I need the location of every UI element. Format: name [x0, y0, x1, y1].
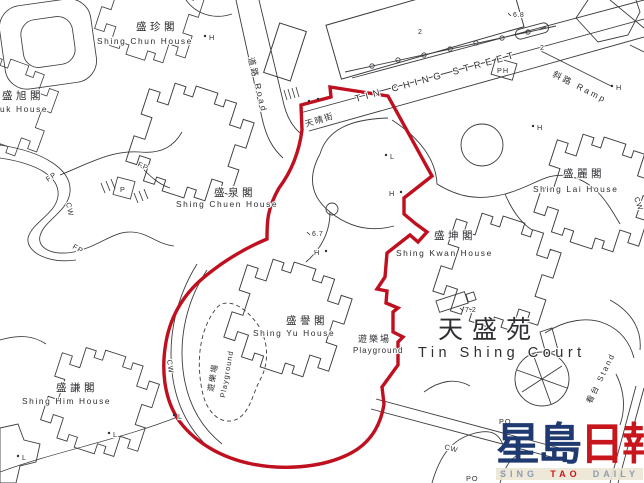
logo-en-word-2: TAO: [550, 470, 580, 479]
label-shing-chun-house-cn: 盛珍閣: [136, 20, 178, 33]
steps-hatch: [284, 87, 299, 100]
label-ramp: 斜路 Ramp: [551, 69, 609, 105]
site-plan-map: 盛珍閣 Shing Chun House 盛旭閣 uk House 盛泉閣 Sh…: [0, 0, 644, 483]
marker-h-2: H: [616, 83, 622, 92]
map-canvas: 盛珍閣 Shing Chun House 盛旭閣 uk House 盛泉閣 Sh…: [0, 0, 644, 483]
playground-paths: [171, 264, 267, 452]
label-shing-lai-house-en: Shing Lai House: [533, 184, 618, 194]
label-cw-4: CW: [632, 196, 644, 212]
label-shing-chun-house-en: Shing Chun House: [97, 36, 193, 46]
label-shing-yuk-house-cn: 盛旭閣: [2, 89, 44, 102]
marker-h-3: H: [537, 123, 543, 132]
label-shing-yuk-house-en: uk House: [0, 104, 48, 114]
logo-en-word-1: SING: [500, 470, 538, 479]
spot-2a: 2: [418, 29, 422, 36]
label-fp-1: FP: [44, 170, 58, 184]
marker-l-1: L: [390, 152, 395, 161]
marker-l-3: L: [113, 430, 118, 439]
label-shing-chuen-house-en: Shing Chuen House: [176, 199, 278, 209]
label-playground-oval-cn: 遊樂場: [205, 363, 220, 393]
logo-en-word-3: DAILY: [593, 470, 639, 479]
building-partial-sw: [0, 424, 40, 483]
label-shing-lai-house-cn: 盛麗閣: [563, 167, 605, 180]
label-p: P: [120, 185, 126, 194]
marker-h-5: H: [314, 248, 320, 257]
label-fp-2: FP: [136, 160, 150, 173]
label-shing-kwan-house-en: Shing Kwan House: [396, 248, 493, 258]
site-boundary: [164, 87, 432, 467]
label-playground-cn: 遊樂場: [358, 333, 391, 344]
label-shing-him-house-cn: 盛謙閣: [56, 381, 98, 394]
marker-h-1: H: [209, 33, 215, 42]
label-po-2: PO: [466, 474, 479, 483]
logo-cn-left: 星島: [496, 419, 580, 470]
label-tin-ching-street-cn: 天晴街: [304, 111, 336, 129]
label-cw-1: CW: [64, 202, 76, 218]
label-cw-2: CW: [165, 359, 176, 374]
label-shing-yu-house-cn: 盛譽閣: [286, 314, 328, 327]
label-playground-oval-en: Playground: [218, 350, 235, 399]
logo-cn-right: 日報: [580, 419, 644, 470]
label-shing-yu-house-en: Shing Yu House: [253, 328, 335, 338]
label-shing-kwan-house-cn: 盛坤閣: [434, 229, 476, 242]
marker-h-4: H: [389, 189, 395, 198]
label-playground-en: Playground: [353, 346, 403, 355]
spot-6-7: 6.7: [312, 231, 323, 238]
label-tin-shing-court-cn: 天盛苑: [438, 316, 540, 344]
label-shing-chuen-house-cn: 盛泉閣: [214, 186, 256, 199]
label-tin-ching-street: TIN CHING STREET: [354, 49, 519, 105]
spot-7-2: 7.2: [465, 307, 476, 314]
sing-tao-daily-watermark: 星島日報 SING TAO DAILY: [496, 423, 643, 480]
sing-tao-logo-en: SING TAO DAILY: [496, 468, 643, 480]
label-ph: PH: [497, 66, 509, 75]
marker-l-4: L: [178, 412, 183, 421]
sing-tao-logo-cn: 星島日報: [496, 423, 643, 467]
spot-2b: 2: [540, 45, 544, 52]
label-tin-shing-court-en: Tin Shing Court: [418, 345, 586, 361]
spot-6-8: 6.8: [513, 12, 524, 19]
building-block-road-junction: [264, 23, 307, 81]
label-shing-him-house-en: Shing Him House: [22, 396, 111, 406]
label-stand: 看台 Stand: [584, 351, 617, 405]
marker-l-2: L: [22, 453, 27, 462]
label-fp-3: FP: [71, 242, 85, 255]
